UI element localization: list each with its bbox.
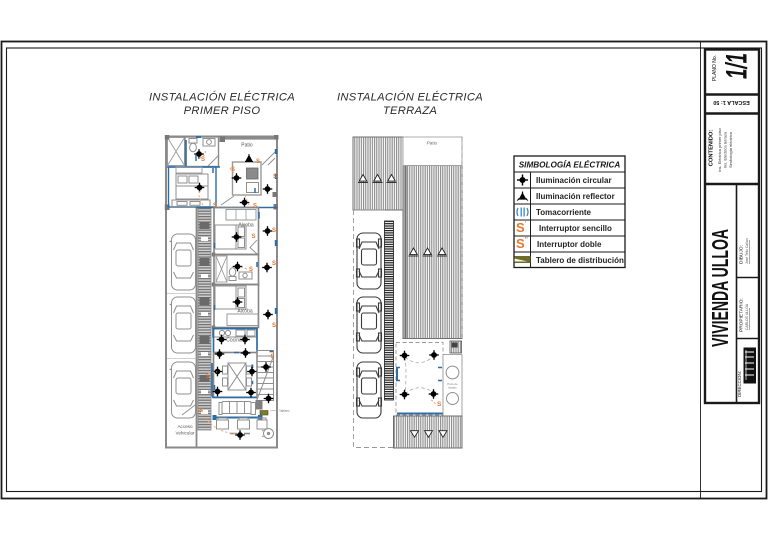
svg-text:Iluminación circular: Iluminación circular [536, 176, 612, 185]
svg-text:INSTALACIÓN ELÉCTRICA: INSTALACIÓN ELÉCTRICA [337, 91, 483, 104]
svg-text:S: S [201, 157, 205, 163]
svg-text:S: S [213, 203, 217, 209]
svg-text:CONTENIDO:: CONTENIDO: [709, 130, 715, 167]
svg-text:Iluminación reflector: Iluminación reflector [536, 192, 615, 201]
svg-text:Tomacorriente: Tomacorriente [536, 208, 592, 217]
svg-text:S: S [516, 220, 525, 235]
svg-text:Vehicular: Vehicular [176, 431, 195, 436]
svg-text:Simbología eléctrica: Simbología eléctrica [728, 131, 733, 168]
svg-text:S: S [253, 204, 257, 210]
svg-text:S: S [272, 228, 276, 234]
svg-text:SIMBOLOGÍA ELÉCTRICA: SIMBOLOGÍA ELÉCTRICA [519, 160, 621, 170]
svg-text:VIVIENDA ULLOA: VIVIENDA ULLOA [707, 229, 733, 347]
svg-text:Interruptor doble: Interruptor doble [537, 240, 602, 249]
svg-text:ESCALA 1: 50: ESCALA 1: 50 [713, 99, 749, 105]
svg-text:Tablero de distribución: Tablero de distribución [536, 256, 624, 265]
svg-text:'': '' [525, 237, 528, 244]
svg-text:José Tello Cañas: José Tello Cañas [745, 238, 749, 264]
svg-text:1/1: 1/1 [720, 53, 753, 79]
svg-text:S: S [272, 323, 276, 329]
svg-text:S: S [273, 174, 277, 180]
svg-text:DIRECCION:: DIRECCION: [737, 371, 742, 397]
svg-text:Ins. Eléctrica terraza: Ins. Eléctrica terraza [723, 131, 728, 168]
svg-text:Ins. Eléctrica primer piso: Ins. Eléctrica primer piso [717, 127, 722, 172]
svg-text:S: S [516, 236, 525, 251]
svg-text:': ' [525, 221, 526, 228]
svg-text:Tablero: Tablero [279, 409, 290, 413]
svg-text:Cocina: Cocina [226, 338, 242, 344]
svg-text:lavado: lavado [448, 386, 457, 390]
svg-text:S: S [206, 374, 210, 380]
svg-text:DIBUJO:: DIBUJO: [739, 245, 745, 264]
svg-text:S: S [252, 234, 256, 240]
svg-text:PRIMER PISO: PRIMER PISO [184, 105, 261, 117]
svg-text:PROPIETARIO:: PROPIETARIO: [739, 298, 745, 332]
svg-text:S: S [272, 261, 276, 267]
svg-text:PLANO No.: PLANO No. [712, 55, 718, 81]
svg-text:S: S [249, 267, 253, 273]
svg-text:CARLOS ULLOA: CARLOS ULLOA [745, 303, 749, 330]
svg-text:S: S [271, 354, 275, 360]
svg-text:S: S [437, 401, 442, 408]
svg-text:Interruptor sencillo: Interruptor sencillo [539, 224, 612, 233]
svg-text:Patio: Patio [241, 143, 253, 149]
svg-text:INSTALACIÓN ELÉCTRICA: INSTALACIÓN ELÉCTRICA [149, 91, 295, 104]
svg-text:TERRAZA: TERRAZA [383, 105, 437, 117]
svg-text:Patio: Patio [427, 141, 438, 146]
svg-text:Acceso: Acceso [177, 424, 193, 429]
svg-text:S: S [256, 159, 260, 165]
